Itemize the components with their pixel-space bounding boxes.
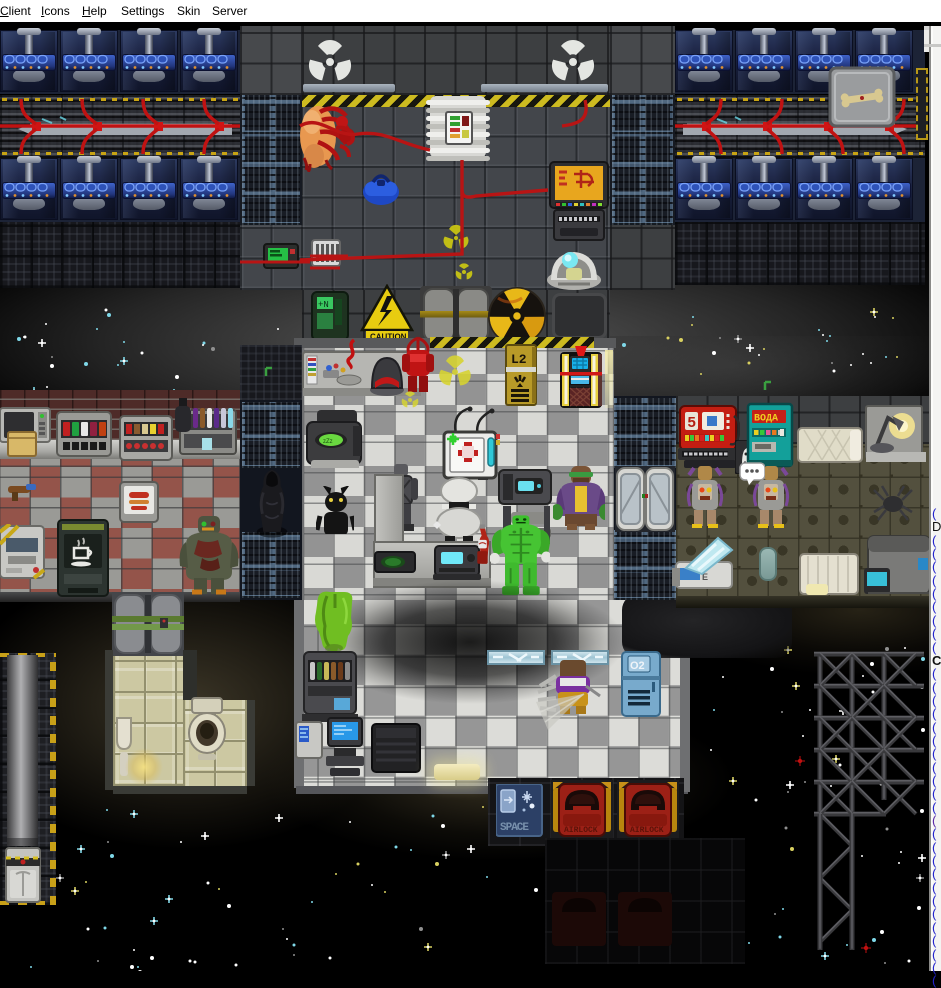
- svg-text:AIRLOCK: AIRLOCK: [630, 826, 664, 835]
- svg-text:SPACE: SPACE: [500, 822, 529, 834]
- svg-text:L2: L2: [511, 352, 527, 367]
- svg-text:ВОДА: ВОДА: [754, 414, 778, 425]
- svg-text:zZz: zZz: [323, 439, 333, 445]
- svg-text:+N: +N: [318, 300, 329, 310]
- svg-text:O2: O2: [630, 660, 645, 672]
- svg-text:AIRLOCK: AIRLOCK: [564, 826, 598, 835]
- svg-text:5: 5: [688, 414, 696, 431]
